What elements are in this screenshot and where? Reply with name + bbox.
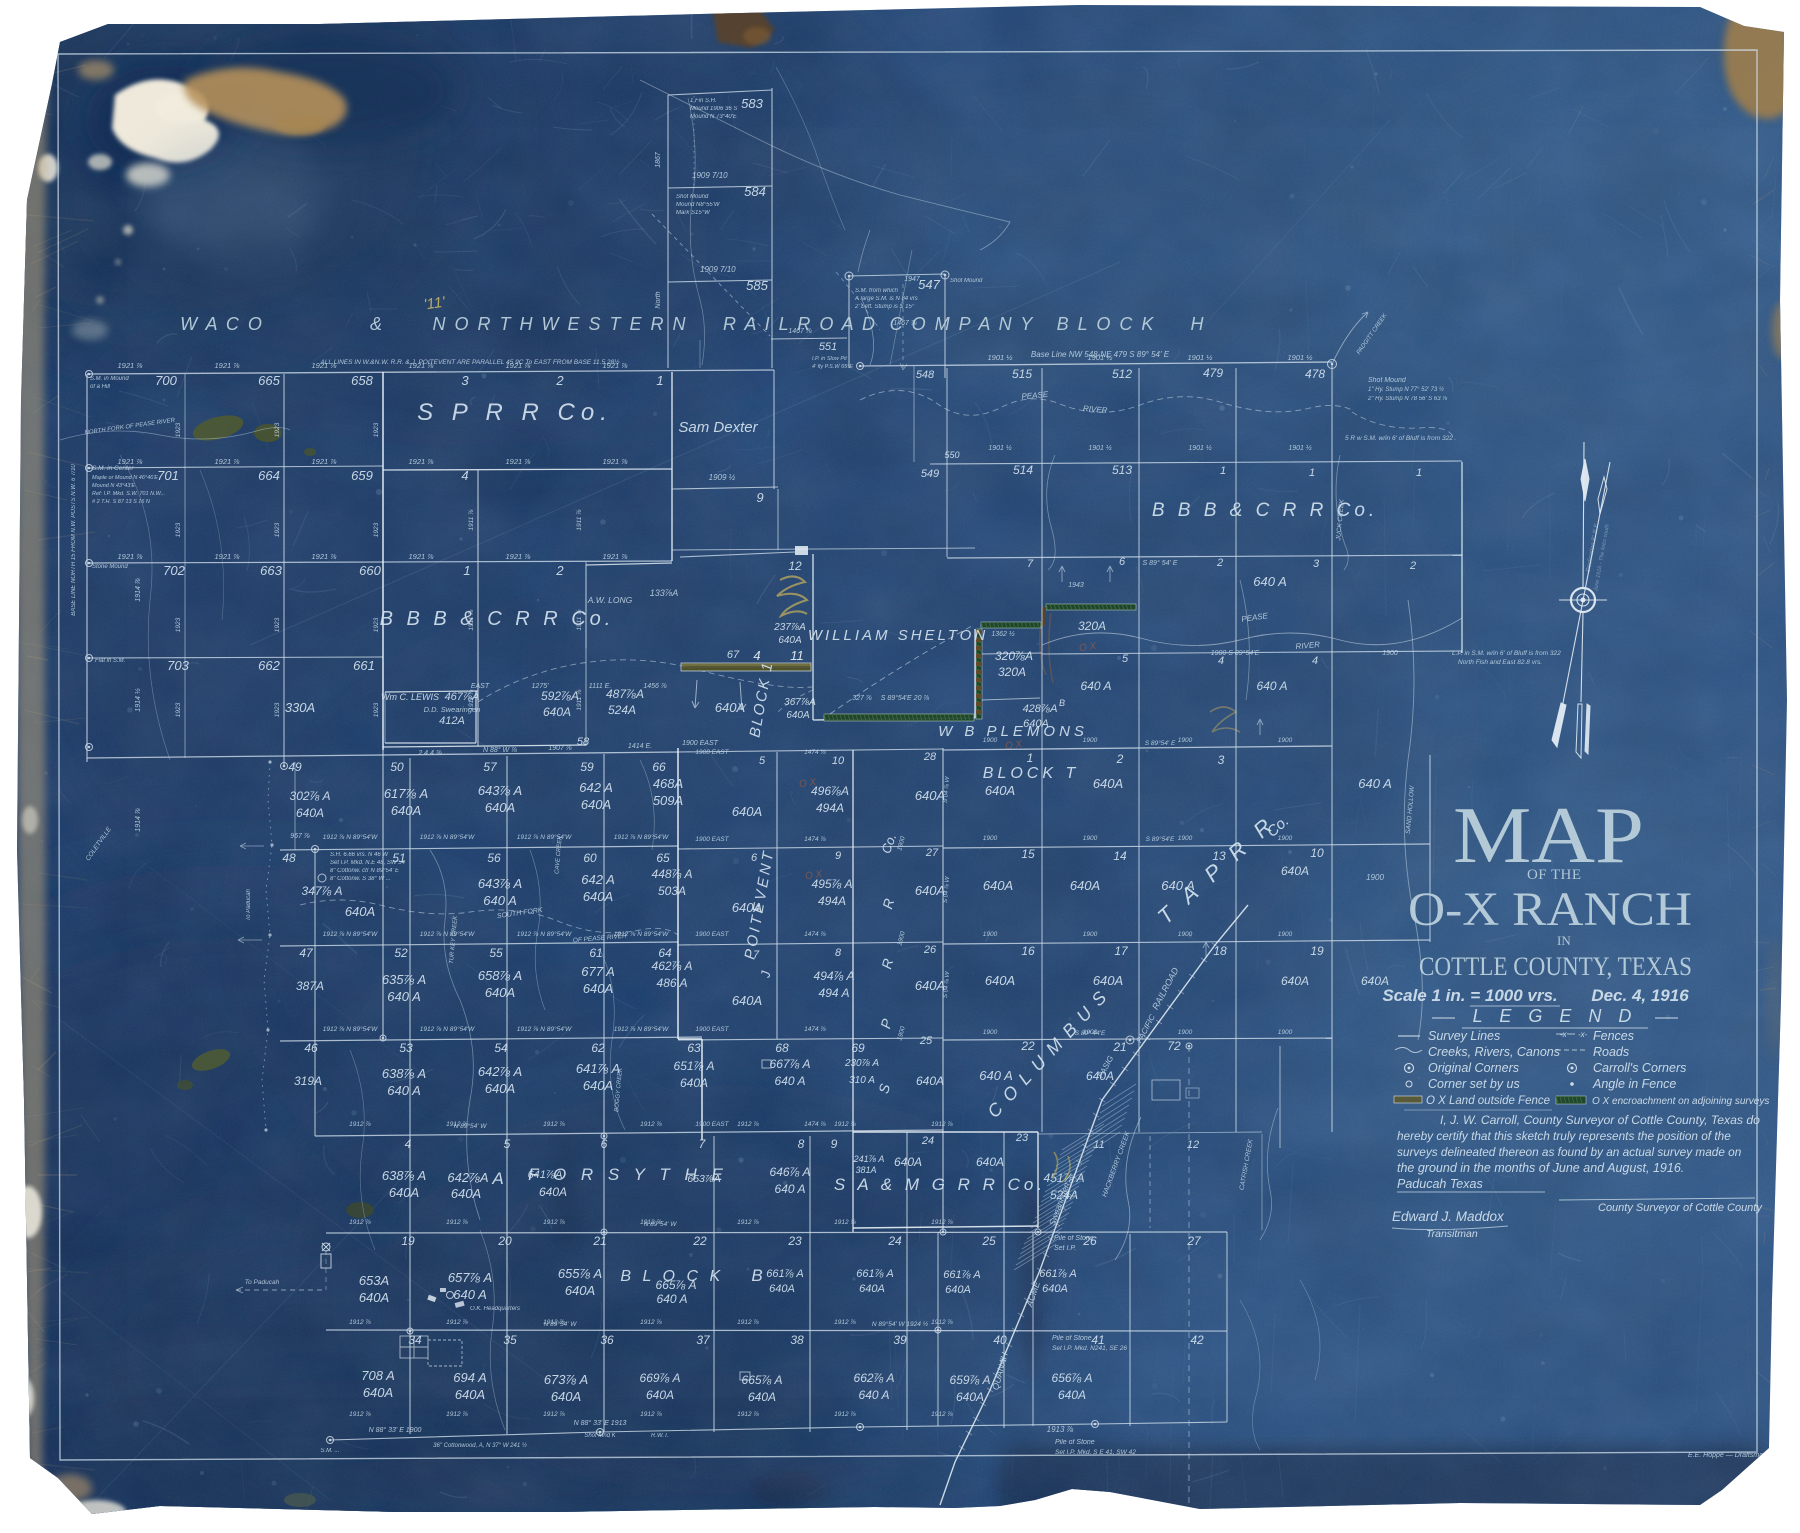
svg-text:27: 27 [925,847,939,859]
svg-text:40: 40 [993,1333,1007,1347]
svg-text:1921 ⅞: 1921 ⅞ [311,552,337,561]
svg-text:R A I L R O A D: R A I L R O A D [723,314,877,334]
svg-text:1901 ½: 1901 ½ [988,444,1012,452]
svg-text:63: 63 [687,1041,701,1055]
svg-text:640A: 640A [646,1388,674,1402]
svg-text:1912 ⅞: 1912 ⅞ [446,1411,468,1418]
svg-text:19: 19 [401,1234,415,1248]
svg-text:640 A: 640 A [1081,679,1112,693]
svg-text:640A: 640A [551,1389,581,1404]
svg-text:646⅞ A: 646⅞ A [770,1165,811,1179]
svg-text:OF THE: OF THE [1527,867,1581,883]
svg-text:1414 E.: 1414 E. [628,743,652,750]
svg-text:B: B [751,1266,762,1285]
svg-text:662: 662 [258,658,280,673]
svg-text:640A: 640A [915,883,945,898]
svg-text:665: 665 [258,373,280,388]
svg-text:663: 663 [260,563,282,578]
svg-text:1900: 1900 [1083,931,1098,938]
svg-text:9: 9 [756,490,763,505]
svg-text:1921 ⅞: 1921 ⅞ [505,361,531,370]
svg-text:S.M. ...: S.M. ... [320,1448,339,1454]
svg-text:1923: 1923 [373,422,380,437]
svg-text:653A: 653A [359,1273,389,1288]
svg-text:2' Left. Stump is S 15°: 2' Left. Stump is S 15° [854,304,915,310]
svg-text:640A: 640A [296,806,324,820]
svg-text:Wm C. LEWIS: Wm C. LEWIS [381,692,439,702]
svg-text:651⅞ A: 651⅞ A [674,1059,715,1073]
svg-text:1912 ⅞ N 89°54'W: 1912 ⅞ N 89°54'W [517,1025,572,1033]
svg-text:S 89°54'E: S 89°54'E [1146,835,1175,843]
svg-text:49: 49 [288,760,302,774]
svg-text:1923: 1923 [274,522,281,537]
svg-text:Shot Mound: Shot Mound [1368,377,1407,384]
svg-text:B L O C K: B L O C K [620,1268,723,1285]
svg-text:661: 661 [353,658,375,673]
svg-text:478: 478 [1305,367,1325,381]
svg-text:1911 ⅞: 1911 ⅞ [468,609,475,631]
svg-text:1913 ⅞: 1913 ⅞ [1047,1425,1074,1434]
svg-text:664: 664 [258,468,280,483]
svg-text:14: 14 [1113,849,1127,863]
svg-text:S P R R Co.: S P R R Co. [417,399,613,426]
svg-text:Mound N8°55'W: Mound N8°55'W [676,202,721,208]
svg-text:642⅞A: 642⅞A [447,1170,488,1185]
svg-text:640A: 640A [539,1185,567,1199]
svg-text:1912 ⅞: 1912 ⅞ [349,1411,371,1418]
svg-text:640A: 640A [976,1155,1004,1169]
svg-text:1912 ⅞: 1912 ⅞ [543,1411,565,1418]
svg-text:N 89°54' W: N 89°54' W [454,1122,488,1130]
svg-text:4: 4 [461,468,468,483]
svg-text:19: 19 [1310,944,1324,958]
svg-text:3: 3 [1313,558,1320,570]
svg-text:1921 ⅞: 1921 ⅞ [505,457,531,466]
svg-text:24: 24 [887,1234,902,1248]
svg-text:320⅞A: 320⅞A [995,649,1033,663]
svg-text:N 89°54' W: N 89°54' W [544,1320,578,1328]
svg-text:1 Fin S.H.: 1 Fin S.H. [690,98,717,104]
svg-text:638⅞ A: 638⅞ A [382,1168,426,1183]
svg-text:1912 ⅞ N 89°54'W: 1912 ⅞ N 89°54'W [323,1025,378,1033]
svg-text:ALL LINES IN W.&N.W. R.R. & J.: ALL LINES IN W.&N.W. R.R. & J. POITEVENT… [319,358,620,366]
svg-text:310 A: 310 A [849,1075,875,1086]
svg-text:640A: 640A [985,973,1015,988]
svg-text:643⅞ A: 643⅞ A [478,876,522,891]
svg-text:Scale 1 in. = 1000 vrs.: Scale 1 in. = 1000 vrs. [1382,986,1557,1005]
svg-text:1900: 1900 [1382,650,1398,657]
svg-text:673⅞ A: 673⅞ A [544,1372,588,1387]
svg-text:2: 2 [555,373,564,388]
svg-text:-x-: -x- [1578,1030,1588,1039]
svg-text:1900: 1900 [983,737,998,744]
svg-text:1900: 1900 [1366,873,1384,882]
svg-text:O X Land outside Fence: O X Land outside Fence [1426,1095,1550,1107]
svg-text:EAST: EAST [471,683,490,690]
svg-text:658: 658 [351,373,373,388]
svg-text:667⅞ A: 667⅞ A [770,1057,811,1071]
svg-text:Dec. 4, 1916: Dec. 4, 1916 [1591,986,1689,1005]
svg-text:46: 46 [304,1041,318,1055]
svg-text:640 A: 640 A [775,1182,806,1196]
svg-text:21: 21 [592,1234,606,1248]
svg-text:1909 ½: 1909 ½ [709,473,736,482]
svg-text:12: 12 [788,559,802,573]
svg-text:640A: 640A [1058,1388,1086,1402]
svg-text:1921 ⅞: 1921 ⅞ [117,552,143,561]
svg-text:494A: 494A [816,801,844,815]
svg-text:640 A: 640 A [387,989,421,1004]
svg-text:the ground in the months of Ju: the ground in the months of June and Aug… [1397,1161,1684,1175]
svg-text:133⅞A: 133⅞A [650,588,679,598]
svg-text:A: A [491,1169,503,1188]
svg-text:surveys delineated thereon as: surveys delineated thereon as found by a… [1397,1145,1742,1159]
svg-text:O-X RANCH: O-X RANCH [1408,883,1692,936]
svg-text:6: 6 [1119,556,1126,568]
svg-text:8" Cottonw. ctr N 89°54' E: 8" Cottonw. ctr N 89°54' E [330,868,400,874]
svg-text:68: 68 [775,1041,789,1055]
svg-text:479: 479 [1203,366,1223,380]
svg-text:11: 11 [1093,1139,1104,1151]
svg-text:1912 ⅞ N 89°54'W: 1912 ⅞ N 89°54'W [517,930,572,938]
svg-text:494A: 494A [818,894,846,908]
svg-text:494 A: 494 A [819,986,850,1000]
svg-text:1900: 1900 [1278,1029,1293,1036]
svg-text:1900: 1900 [983,835,998,842]
svg-text:11: 11 [790,648,804,663]
svg-text:1921 ⅞: 1921 ⅞ [408,361,434,370]
svg-text:8" Cottonw. S 38° W ...: 8" Cottonw. S 38° W ... [330,876,391,882]
svg-text:Roads: Roads [1593,1045,1629,1059]
svg-text:10: 10 [832,755,845,767]
svg-text:640A: 640A [543,705,571,719]
svg-text:57: 57 [483,760,498,774]
svg-text:1912 ⅞: 1912 ⅞ [446,1219,468,1226]
svg-text:'11': '11' [423,293,448,313]
svg-text:Ref: I.P. Mkd. S.W. 701 N.W...: Ref: I.P. Mkd. S.W. 701 N.W... [92,491,165,497]
svg-text:640A: 640A [1042,1283,1068,1295]
svg-text:North: North [655,291,662,308]
svg-text:BLOCK T: BLOCK T [983,765,1079,782]
svg-text:1912 ⅞ N 89°54'W: 1912 ⅞ N 89°54'W [323,930,378,938]
svg-text:1923: 1923 [373,702,380,717]
svg-text:24: 24 [921,1135,934,1147]
svg-text:640A: 640A [363,1385,393,1400]
svg-text:640 A: 640 A [387,1083,421,1098]
svg-text:60: 60 [583,851,597,865]
svg-text:53: 53 [399,1041,413,1055]
svg-text:39: 39 [893,1333,907,1347]
svg-text:S.M. from which: S.M. from which [855,288,899,294]
svg-text:1901 ½: 1901 ½ [1087,353,1113,362]
svg-text:Shot Mnd K: Shot Mnd K [584,1433,616,1439]
svg-text:641⅞ A: 641⅞ A [576,1061,620,1076]
svg-text:640A: 640A [1281,864,1309,878]
svg-text:C O M P A N Y: C O M P A N Y [890,314,1035,334]
svg-text:1921 ⅞: 1921 ⅞ [311,457,337,466]
svg-text:1923: 1923 [175,702,182,717]
svg-text:1923: 1923 [373,617,380,632]
svg-text:L.P. in S.M. w/in 6' of Bluff: L.P. in S.M. w/in 6' of Bluff is from 32… [1452,650,1561,657]
svg-text:1914 ⅞: 1914 ⅞ [135,578,142,602]
svg-text:1: 1 [463,563,470,578]
svg-text:1912 ⅞ N 89°54'W: 1912 ⅞ N 89°54'W [420,1025,475,1033]
svg-text:515: 515 [1012,367,1032,381]
svg-text:Paducah Texas: Paducah Texas [1397,1177,1483,1191]
svg-text:347⅞ A: 347⅞ A [302,884,343,898]
svg-text:1943: 1943 [1068,582,1084,589]
svg-text:1907 ⅞: 1907 ⅞ [548,745,572,752]
svg-text:1912 ⅞ N 89°54'W: 1912 ⅞ N 89°54'W [323,833,378,841]
svg-text:Angle in Fence: Angle in Fence [1592,1077,1676,1091]
svg-text:34: 34 [408,1333,422,1347]
svg-text:640 A: 640 A [483,893,517,908]
svg-text:5: 5 [504,1137,511,1151]
svg-text:1: 1 [1309,467,1315,479]
svg-text:Original Corners: Original Corners [1428,1061,1519,1075]
svg-text:1911 ⅞: 1911 ⅞ [576,509,583,531]
svg-text:5 R w S.M. w/in 6' of Bluff is: 5 R w S.M. w/in 6' of Bluff is from 322 [1345,435,1453,442]
svg-text:38: 38 [790,1333,804,1347]
svg-text:659: 659 [351,468,373,483]
svg-text:1900 EAST: 1900 EAST [695,749,729,756]
svg-text:Mound N 43°43'E: Mound N 43°43'E [92,483,135,489]
svg-text:514: 514 [1013,463,1033,477]
svg-text:Corner set by us: Corner set by us [1428,1077,1520,1091]
svg-text:Edward J. Maddox: Edward J. Maddox [1392,1209,1505,1224]
svg-text:2 4 4 ⅞: 2 4 4 ⅞ [417,750,442,757]
svg-text:22: 22 [1020,1039,1035,1053]
svg-text:Pile of Stone: Pile of Stone [1054,1235,1094,1242]
svg-text:661⅞ A: 661⅞ A [943,1269,981,1281]
svg-text:1912 ⅞: 1912 ⅞ [931,1219,953,1226]
svg-text:640A: 640A [1281,974,1309,988]
svg-text:9: 9 [831,1137,838,1151]
svg-text:1900 EAST: 1900 EAST [695,1026,729,1033]
svg-text:549: 549 [921,468,939,480]
svg-text:10: 10 [1310,846,1324,860]
svg-text:640A: 640A [769,1283,795,1295]
svg-text:Stone Mound: Stone Mound [92,564,128,570]
svg-text:583: 583 [741,96,763,111]
svg-text:15: 15 [1021,847,1035,861]
svg-text:550: 550 [944,450,959,460]
svg-text:655⅞ A: 655⅞ A [558,1266,602,1281]
svg-text:1914 ½: 1914 ½ [134,688,142,712]
svg-text:5: 5 [1122,653,1129,665]
svg-text:1901 ½: 1901 ½ [1288,444,1312,452]
svg-text:52: 52 [394,946,408,960]
svg-text:381A: 381A [855,1165,876,1175]
svg-text:8: 8 [835,947,842,959]
svg-text:W B PLEMONS: W B PLEMONS [938,723,1088,740]
svg-text:635⅞ A: 635⅞ A [382,972,426,987]
svg-text:1912 ⅞: 1912 ⅞ [737,1219,759,1226]
svg-text:1912 ⅞: 1912 ⅞ [349,1219,371,1226]
svg-text:N 88° 33' E 1900: N 88° 33' E 1900 [369,1426,422,1434]
svg-text:Pile of Stone: Pile of Stone [1055,1439,1095,1446]
svg-text:640A: 640A [1093,973,1123,988]
svg-text:56: 56 [487,851,501,865]
svg-text:18: 18 [1213,944,1227,958]
svg-text:1921 ⅞: 1921 ⅞ [408,552,434,561]
svg-text:1914 ⅞: 1914 ⅞ [135,808,142,832]
svg-text:585: 585 [746,278,768,293]
svg-text:1900 EAST: 1900 EAST [682,740,719,747]
svg-text:237⅞A: 237⅞A [773,622,806,633]
svg-text:640 A: 640 A [775,1074,806,1088]
svg-text:&: & [370,314,384,334]
svg-text:1900: 1900 [983,1029,998,1036]
svg-text:1: 1 [1416,467,1422,479]
svg-text:Transitman: Transitman [1426,1228,1478,1240]
svg-text:658⅞ A: 658⅞ A [478,968,522,983]
svg-text:1912 ⅞: 1912 ⅞ [543,1121,565,1128]
svg-text:640A: 640A [945,1284,971,1296]
svg-text:To Paducah: To Paducah [246,888,252,920]
svg-text:640A: 640A [583,981,613,996]
svg-text:548: 548 [916,369,935,381]
svg-text:330A: 330A [285,700,315,715]
svg-text:640A: 640A [583,889,613,904]
svg-text:640A: 640A [565,1283,595,1298]
svg-text:1921 ⅞: 1921 ⅞ [602,361,628,370]
svg-text:1923: 1923 [175,617,182,632]
svg-text:23: 23 [1015,1132,1029,1144]
svg-text:1912 ⅞ N 89°54'W: 1912 ⅞ N 89°54'W [614,833,669,841]
svg-text:36: 36 [600,1333,614,1347]
svg-text:S 89° 54' E: S 89° 54' E [1143,559,1178,567]
svg-text:1912 ⅞: 1912 ⅞ [931,1411,953,1418]
svg-text:1921 ⅞: 1921 ⅞ [408,457,434,466]
svg-text:-x: -x [1560,1030,1568,1039]
svg-text:1901 ½: 1901 ½ [1287,353,1313,362]
svg-text:1901 ½: 1901 ½ [1188,444,1212,452]
svg-text:Survey Lines: Survey Lines [1428,1029,1500,1043]
svg-text:S 89°54'E 20 ⅞: S 89°54'E 20 ⅞ [881,694,930,702]
svg-text:694 A: 694 A [453,1370,487,1385]
svg-text:1275': 1275' [532,683,550,690]
svg-text:327 ⅞: 327 ⅞ [852,695,872,702]
svg-text:640A: 640A [732,804,762,819]
svg-text:7: 7 [1027,558,1034,570]
svg-text:640A: 640A [985,783,1015,798]
svg-text:428⅞A: 428⅞A [1023,703,1058,715]
svg-text:1912 ⅞ N 89°54'W: 1912 ⅞ N 89°54'W [517,833,572,841]
svg-text:487⅞A: 487⅞A [606,687,644,701]
svg-text:1912 ⅞: 1912 ⅞ [834,1319,856,1326]
svg-text:640A: 640A [1070,878,1100,893]
svg-text:69: 69 [851,1041,865,1055]
svg-text:50: 50 [390,760,404,774]
svg-text:22: 22 [692,1234,707,1248]
svg-text:64: 64 [658,946,672,960]
svg-text:1912 ⅞: 1912 ⅞ [931,1121,953,1128]
svg-text:1900 EAST: 1900 EAST [695,931,729,938]
svg-text:524A: 524A [608,703,636,717]
svg-text:642 A: 642 A [579,780,613,795]
svg-text:367⅞A: 367⅞A [784,697,816,708]
svg-text:642 A: 642 A [581,872,615,887]
svg-text:662⅞ A: 662⅞ A [854,1371,895,1385]
svg-text:O.K. Headquarters: O.K. Headquarters [470,1306,520,1312]
svg-text:H: H [1191,314,1206,334]
svg-text:Flat in S.M.: Flat in S.M. [95,658,125,664]
svg-text:1: 1 [1220,465,1226,477]
svg-text:640A: 640A [732,993,762,1008]
svg-text:I, J. W. Carroll, County Surve: I, J. W. Carroll, County Surveyor of Cot… [1440,1113,1760,1127]
svg-text:Fences: Fences [1593,1029,1634,1043]
svg-text:1912 ⅞: 1912 ⅞ [349,1319,371,1326]
svg-text:640A: 640A [915,978,945,993]
svg-text:67: 67 [727,649,740,661]
svg-text:638⅞ A: 638⅞ A [382,1066,426,1081]
svg-text:640A: 640A [389,1185,419,1200]
svg-text:O X encroachment on adjoining: O X encroachment on adjoining surveys [1592,1096,1769,1107]
svg-text:Carroll's Corners: Carroll's Corners [1593,1061,1686,1075]
svg-text:17: 17 [1114,944,1129,958]
svg-text:1867: 1867 [655,151,662,168]
svg-text:1900 EAST: 1900 EAST [695,836,729,843]
svg-text:8: 8 [798,1137,805,1151]
svg-text:72: 72 [1167,1039,1181,1053]
svg-text:387A: 387A [296,979,324,993]
svg-text:640A: 640A [859,1283,885,1295]
svg-text:1912 ⅞ N 89°54'W: 1912 ⅞ N 89°54'W [420,833,475,841]
svg-text:1912 ⅞: 1912 ⅞ [834,1121,856,1128]
svg-text:23: 23 [787,1234,802,1248]
svg-text:IN: IN [1557,933,1571,948]
svg-text:of a Hill: of a Hill [90,384,111,390]
svg-text:513: 513 [1112,463,1132,477]
svg-text:1901 ½: 1901 ½ [1088,444,1112,452]
svg-text:47: 47 [299,946,314,960]
svg-text:1911 ⅞: 1911 ⅞ [468,509,475,531]
svg-text:1474 ⅞: 1474 ⅞ [804,931,826,938]
svg-text:L E G E N D: L E G E N D [1473,1006,1638,1026]
svg-text:640A: 640A [359,1290,389,1305]
svg-text:701: 701 [157,468,179,483]
svg-text:640A: 640A [581,797,611,812]
svg-text:2: 2 [555,563,564,578]
svg-text:495⅞ A: 495⅞ A [812,877,853,891]
svg-text:1900: 1900 [1278,737,1293,744]
svg-text:1474 ⅞: 1474 ⅞ [804,1026,826,1033]
svg-text:4: 4 [405,1137,412,1151]
svg-text:640 A: 640 A [1253,574,1287,589]
svg-text:2: 2 [1216,557,1223,569]
svg-text:617⅞ A: 617⅞ A [384,786,428,801]
svg-text:1900: 1900 [1278,931,1293,938]
svg-text:1901 ½: 1901 ½ [1187,353,1213,362]
svg-text:640 A: 640 A [1257,679,1288,693]
svg-text:4' fly P.S.W 65°E: 4' fly P.S.W 65°E [812,364,853,370]
svg-text:1" Hy. Stump N 77° 52' 73 ½: 1" Hy. Stump N 77° 52' 73 ½ [1368,386,1444,393]
svg-text:1: 1 [1027,751,1034,765]
svg-text:S 89°54' E: S 89°54' E [1145,739,1176,747]
svg-text:1912 ⅞ N 89°54'W: 1912 ⅞ N 89°54'W [420,930,475,938]
svg-text:4: 4 [1312,655,1318,667]
svg-text:Set I.P.: Set I.P. [1054,1245,1076,1252]
svg-text:1474 ⅞: 1474 ⅞ [804,1121,826,1128]
svg-text:Creeks, Rivers, Canons: Creeks, Rivers, Canons [1428,1045,1560,1059]
svg-text:496⅞A: 496⅞A [811,784,849,798]
svg-text:1923: 1923 [274,422,281,437]
svg-text:37: 37 [696,1333,711,1347]
svg-text:640 A: 640 A [1358,776,1392,791]
svg-text:640 A: 640 A [859,1388,890,1402]
svg-text:Shot Mound: Shot Mound [950,278,983,284]
